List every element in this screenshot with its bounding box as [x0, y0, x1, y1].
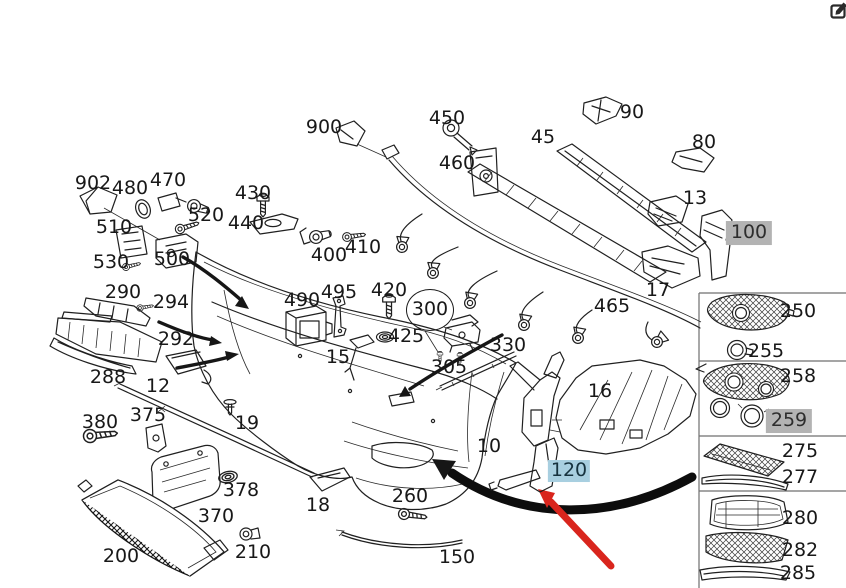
part-label-375[interactable]: 375: [130, 406, 166, 426]
part-label-300[interactable]: 300: [406, 289, 454, 331]
part-label-470[interactable]: 470: [150, 171, 186, 191]
part-label-288[interactable]: 288: [90, 368, 126, 388]
part-label-292[interactable]: 292: [158, 330, 194, 350]
part-label-90[interactable]: 90: [620, 103, 644, 123]
part-label-19[interactable]: 19: [235, 414, 259, 434]
part-label-18[interactable]: 18: [306, 496, 330, 516]
part-label-460[interactable]: 460: [439, 154, 475, 174]
part-label-510[interactable]: 510: [96, 218, 132, 238]
part-label-430[interactable]: 430: [235, 184, 271, 204]
part-label-425[interactable]: 425: [388, 327, 424, 347]
part-label-100[interactable]: 100: [726, 221, 772, 245]
part-label-10[interactable]: 10: [477, 437, 501, 457]
part-label-275[interactable]: 275: [782, 442, 818, 462]
part-label-290[interactable]: 290: [105, 283, 141, 303]
part-label-282[interactable]: 282: [782, 541, 818, 561]
part-label-210[interactable]: 210: [235, 543, 271, 563]
part-label-495[interactable]: 495: [321, 283, 357, 303]
part-label-13[interactable]: 13: [683, 189, 707, 209]
edit-compose-icon[interactable]: [830, 2, 846, 20]
part-label-250[interactable]: 250: [780, 302, 816, 322]
part-label-200[interactable]: 200: [103, 547, 139, 567]
part-label-80[interactable]: 80: [692, 133, 716, 153]
part-label-450[interactable]: 450: [429, 109, 465, 129]
part-label-285[interactable]: 285: [780, 564, 816, 584]
part-label-305[interactable]: 305: [431, 358, 467, 378]
part-label-900[interactable]: 900: [306, 118, 342, 138]
part-label-370[interactable]: 370: [198, 507, 234, 527]
diagram-stage: 9024804705105205305004304409004504604004…: [0, 0, 846, 588]
part-label-520[interactable]: 520: [188, 206, 224, 226]
part-label-440[interactable]: 440: [228, 214, 264, 234]
part-label-16[interactable]: 16: [588, 382, 612, 402]
part-label-330[interactable]: 330: [490, 336, 526, 356]
part-label-380[interactable]: 380: [82, 413, 118, 433]
part-label-400[interactable]: 400: [311, 246, 347, 266]
part-label-902[interactable]: 902: [75, 174, 111, 194]
part-label-378[interactable]: 378: [223, 481, 259, 501]
part-label-120[interactable]: 120: [548, 460, 590, 482]
part-label-260[interactable]: 260: [392, 487, 428, 507]
part-label-294[interactable]: 294: [153, 293, 189, 313]
part-label-420[interactable]: 420: [371, 281, 407, 301]
part-label-258[interactable]: 258: [780, 367, 816, 387]
part-label-465[interactable]: 465: [594, 297, 630, 317]
part-label-17[interactable]: 17: [646, 281, 670, 301]
part-label-530[interactable]: 530: [93, 253, 129, 273]
labels-layer: 9024804705105205305004304409004504604004…: [0, 0, 846, 588]
part-label-150[interactable]: 150: [439, 548, 475, 568]
part-label-45[interactable]: 45: [531, 128, 555, 148]
part-label-255[interactable]: 255: [748, 342, 784, 362]
part-label-490[interactable]: 490: [284, 291, 320, 311]
part-label-259[interactable]: 259: [766, 409, 812, 433]
part-label-12[interactable]: 12: [146, 377, 170, 397]
part-label-15[interactable]: 15: [326, 348, 350, 368]
part-label-277[interactable]: 277: [782, 468, 818, 488]
part-label-410[interactable]: 410: [345, 238, 381, 258]
part-label-500[interactable]: 500: [154, 250, 190, 270]
part-label-480[interactable]: 480: [112, 179, 148, 199]
part-label-280[interactable]: 280: [782, 509, 818, 529]
